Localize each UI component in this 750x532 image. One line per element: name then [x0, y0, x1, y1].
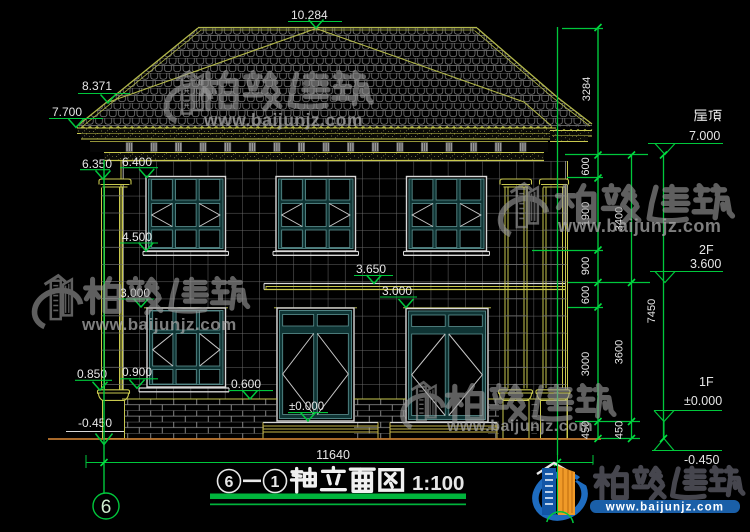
svg-text:7450: 7450 [646, 299, 658, 323]
svg-text:3284: 3284 [581, 77, 593, 101]
svg-text:1: 1 [271, 474, 280, 491]
svg-text:±0.000: ±0.000 [289, 401, 324, 413]
svg-text:-0.450: -0.450 [684, 453, 719, 467]
svg-text:600: 600 [580, 286, 592, 304]
svg-text:3000: 3000 [580, 352, 592, 376]
svg-text:www.baijunjz.com: www.baijunjz.com [605, 502, 724, 514]
svg-text:3.000: 3.000 [382, 284, 412, 298]
svg-text:-0.450: -0.450 [78, 416, 112, 430]
svg-text:www.baijunjz.com: www.baijunjz.com [446, 418, 593, 435]
svg-text:7.700: 7.700 [52, 105, 82, 119]
svg-text:±0.000: ±0.000 [684, 394, 722, 408]
svg-text:3.600: 3.600 [690, 257, 721, 271]
svg-text:0.600: 0.600 [231, 377, 261, 391]
svg-text:1F: 1F [699, 375, 714, 389]
svg-text:6.400: 6.400 [122, 155, 152, 169]
svg-text:0.850: 0.850 [77, 367, 107, 381]
svg-text:3.650: 3.650 [356, 262, 386, 276]
svg-text:0.900: 0.900 [122, 365, 152, 379]
svg-text:7.000: 7.000 [689, 129, 720, 143]
svg-text:6.350: 6.350 [82, 157, 112, 171]
svg-text:450: 450 [614, 421, 626, 439]
svg-text:www.baijunjz.com: www.baijunjz.com [81, 315, 237, 334]
svg-text:www.baijunjz.com: www.baijunjz.com [203, 110, 363, 130]
svg-text:11640: 11640 [316, 448, 350, 462]
svg-text:www.baijunjz.com: www.baijunjz.com [557, 216, 721, 236]
svg-text:6: 6 [101, 497, 112, 518]
svg-text:8.371: 8.371 [82, 79, 112, 93]
svg-text:1:100: 1:100 [412, 472, 464, 495]
svg-text:3600: 3600 [614, 340, 626, 364]
svg-text:2F: 2F [699, 243, 714, 257]
svg-text:4.500: 4.500 [122, 230, 152, 244]
svg-text:6: 6 [225, 474, 234, 491]
svg-text:900: 900 [580, 257, 592, 275]
svg-text:600: 600 [580, 157, 592, 175]
